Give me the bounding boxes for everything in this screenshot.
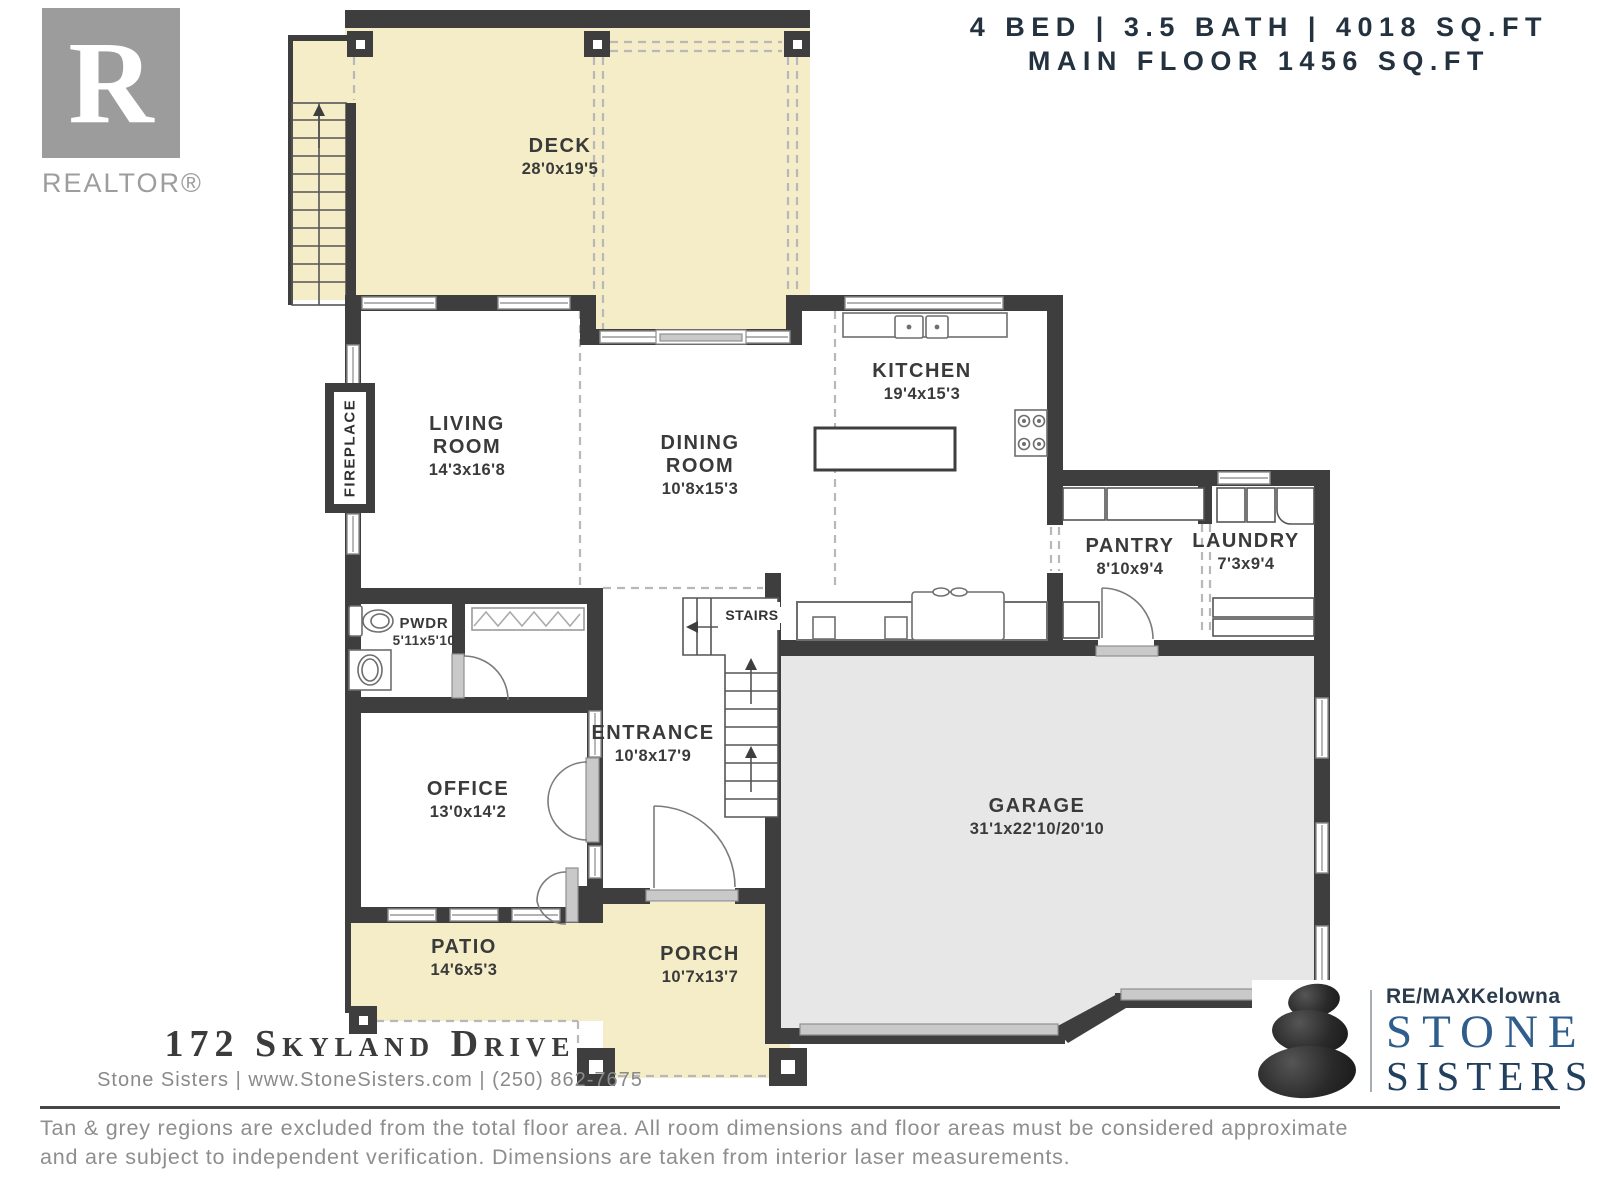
disclaimer: Tan & grey regions are excluded from the… xyxy=(40,1114,1570,1172)
disclaimer-line2: and are subject to independent verificat… xyxy=(40,1143,1570,1172)
room-label-garage: GARAGE 31'1x22'10/20'10 xyxy=(970,795,1104,839)
listing-specs: 4 BED | 3.5 BATH | 4018 SQ.FT MAIN FLOOR… xyxy=(970,10,1548,78)
specs-line1: 4 BED | 3.5 BATH | 4018 SQ.FT xyxy=(970,10,1548,44)
specs-line2: MAIN FLOOR 1456 SQ.FT xyxy=(970,44,1548,78)
room-label-kitchen: KITCHEN 19'4x15'3 xyxy=(872,360,971,404)
footer-divider-line xyxy=(40,1106,1560,1109)
realtor-logo: R REALTOR® xyxy=(42,8,232,199)
room-label-living-room: LIVING ROOM 14'3x16'8 xyxy=(405,413,530,480)
stone-label: STONE xyxy=(1386,1009,1595,1055)
fireplace-label: FIREPLACE xyxy=(342,399,359,498)
room-label-office: OFFICE 13'0x14'2 xyxy=(427,778,509,822)
room-label-laundry: LAUNDRY 7'3x9'4 xyxy=(1192,530,1300,574)
brand-divider xyxy=(1370,990,1372,1092)
room-label-pantry: PANTRY 8'10x9'4 xyxy=(1086,535,1175,579)
contact-line: Stone Sisters | www.StoneSisters.com | (… xyxy=(70,1069,670,1092)
fixtures xyxy=(349,313,1314,690)
realtor-logo-label: REALTOR® xyxy=(42,168,232,199)
brand-text: RE/MAXKelowna STONE SISTERS xyxy=(1386,985,1595,1097)
room-label-powder-room: PWDR 5'11x5'10 xyxy=(393,615,456,648)
disclaimer-line1: Tan & grey regions are excluded from the… xyxy=(40,1114,1570,1143)
stacked-stones-icon xyxy=(1258,984,1356,1098)
room-label-entrance: ENTRANCE 10'8x17'9 xyxy=(591,722,714,766)
address-block: 172 Skyland Drive Stone Sisters | www.St… xyxy=(70,1024,670,1092)
address-line: 172 Skyland Drive xyxy=(70,1024,670,1064)
room-label-dining-room: DINING ROOM 10'8x15'3 xyxy=(638,432,763,499)
interior-stairs xyxy=(683,598,780,817)
realtor-r-letter: R xyxy=(68,24,153,142)
sisters-label: SISTERS xyxy=(1386,1055,1595,1097)
room-label-patio: PATIO 14'6x5'3 xyxy=(431,936,498,980)
floor-plan-page: R REALTOR® 4 BED | 3.5 BATH | 4018 SQ.FT… xyxy=(0,0,1600,1200)
stairs-label: STAIRS xyxy=(722,607,781,623)
room-label-porch: PORCH 10'7x13'7 xyxy=(660,943,740,987)
realtor-logo-icon: R xyxy=(42,8,180,158)
room-label-deck: DECK 28'0x19'5 xyxy=(522,135,599,179)
stone-sisters-logo: RE/MAXKelowna STONE SISTERS xyxy=(1252,980,1600,1102)
